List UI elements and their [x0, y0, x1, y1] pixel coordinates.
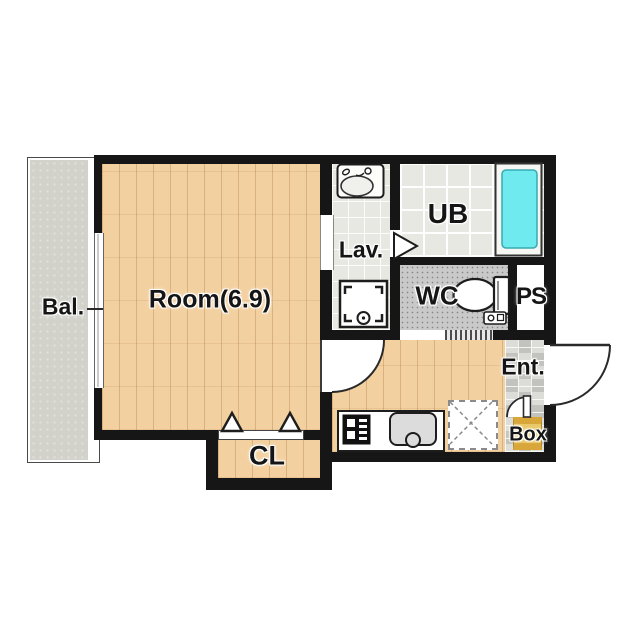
unit-bath-floor [400, 164, 544, 257]
wc-label: WC [415, 281, 458, 312]
floor-plan: Bal. Room(6.9) Lav. UB WC PS Ent. Box CL [0, 0, 640, 640]
wall-segment [94, 430, 218, 440]
closet-label: CL [249, 441, 285, 472]
room-window [94, 233, 104, 388]
balcony-label: Bal. [42, 294, 84, 321]
wall-segment [493, 330, 556, 340]
entrance-label: Ent. [501, 354, 544, 381]
pipe-space-label: PS [516, 283, 546, 311]
wall-segment [94, 155, 556, 164]
wall-segment [390, 257, 544, 265]
wc-door-opening [400, 330, 445, 340]
wall-segment [390, 164, 400, 230]
refrigerator-space [448, 400, 498, 450]
room-door-opening [320, 340, 334, 392]
wall-segment [332, 452, 556, 462]
wall-segment [544, 155, 556, 345]
wall-segment [206, 478, 332, 490]
unit-bath-label: UB [428, 198, 468, 230]
wall-segment [320, 330, 400, 340]
kitchen-counter [337, 410, 445, 452]
main-room-label: Room(6.9) [149, 286, 271, 315]
lavatory-sliding-door [320, 215, 334, 270]
wall-segment [94, 155, 102, 233]
entry-door-opening [544, 345, 556, 405]
shoe-box-label: Box [509, 424, 547, 447]
entry-door-swing-icon [550, 345, 610, 405]
lavatory-label: Lav. [339, 237, 383, 264]
wc-door-panel [445, 330, 493, 340]
wall-segment [320, 392, 332, 490]
wall-segment [390, 257, 400, 340]
closet-opening [218, 430, 304, 440]
wall-segment [320, 164, 332, 215]
